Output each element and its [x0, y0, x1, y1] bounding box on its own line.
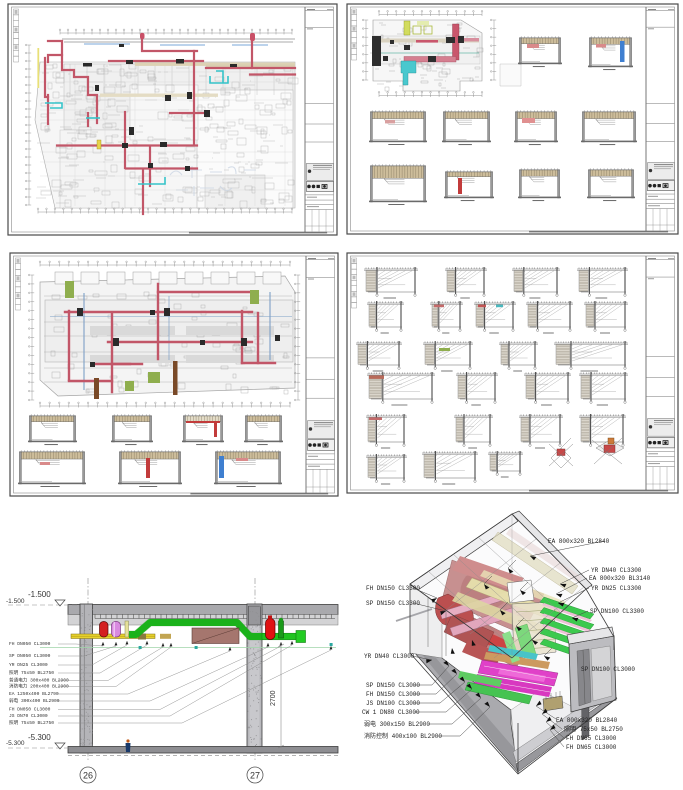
svg-text:FH DN050 CL3000: FH DN050 CL3000	[9, 707, 51, 713]
svg-text:SP DN100 CL3000: SP DN100 CL3000	[581, 666, 635, 673]
svg-text:26: 26	[83, 771, 93, 781]
svg-text:消防控制 400x100 BL2900: 消防控制 400x100 BL2900	[364, 732, 442, 740]
svg-text:YR DN25 CL3000: YR DN25 CL3000	[9, 662, 48, 668]
svg-text:FH DN150 CL3300: FH DN150 CL3300	[366, 585, 420, 592]
svg-text:-1.500: -1.500	[28, 590, 51, 599]
svg-text:SP DN150 CL3300: SP DN150 CL3300	[366, 600, 420, 607]
svg-text:YR DN40 CL3300: YR DN40 CL3300	[591, 567, 642, 574]
svg-text:YR DN40 CL3000: YR DN40 CL3000	[364, 653, 415, 660]
svg-text:JS DN100 CL3000: JS DN100 CL3000	[366, 700, 420, 707]
svg-text:CW 1 DN80 CL3000: CW 1 DN80 CL3000	[362, 709, 420, 716]
svg-text:FH DN65 CL3000: FH DN65 CL3000	[566, 744, 617, 751]
svg-text:-5.300: -5.300	[28, 733, 51, 742]
svg-text:FH DN65 CL3000: FH DN65 CL3000	[566, 735, 617, 742]
svg-text:SP DN150 CL3000: SP DN150 CL3000	[366, 682, 420, 689]
svg-text:YR DN25 CL3300: YR DN25 CL3300	[591, 585, 642, 592]
svg-text:-5.300: -5.300	[6, 740, 25, 747]
svg-text:消防电力 200x400 BL2900: 消防电力 200x400 BL2900	[9, 683, 69, 690]
svg-text:EA 1250x400 BL2790: EA 1250x400 BL2790	[9, 691, 59, 697]
svg-text:普通电力 300x400 BL2900: 普通电力 300x400 BL2900	[9, 677, 69, 684]
svg-text:照明 75x50 BL2750: 照明 75x50 BL2750	[564, 726, 623, 733]
svg-text:SP DN100 CL3300: SP DN100 CL3300	[590, 608, 644, 615]
svg-text:SP DN050 CL3000: SP DN050 CL3000	[9, 653, 51, 659]
svg-text:FH DN050 CL3000: FH DN050 CL3000	[9, 641, 51, 647]
svg-text:照明 75x50 BL2750: 照明 75x50 BL2750	[9, 720, 54, 726]
svg-text:EA 800x320 BL3140: EA 800x320 BL3140	[589, 575, 651, 582]
svg-text:EA 800x320 BL2840: EA 800x320 BL2840	[556, 717, 618, 724]
svg-text:弱电 300x400 BL2900: 弱电 300x400 BL2900	[9, 697, 60, 704]
svg-text:27: 27	[250, 771, 260, 781]
svg-text:JS DN70 CL3000: JS DN70 CL3000	[9, 713, 48, 719]
svg-text:弱电 300x150 BL2900: 弱电 300x150 BL2900	[364, 720, 430, 728]
svg-text:2700: 2700	[270, 690, 277, 706]
svg-text:-1.500: -1.500	[6, 598, 25, 605]
svg-text:照明 75x50 BL2750: 照明 75x50 BL2750	[9, 670, 54, 676]
svg-text:FH DN150 CL3000: FH DN150 CL3000	[366, 691, 420, 698]
